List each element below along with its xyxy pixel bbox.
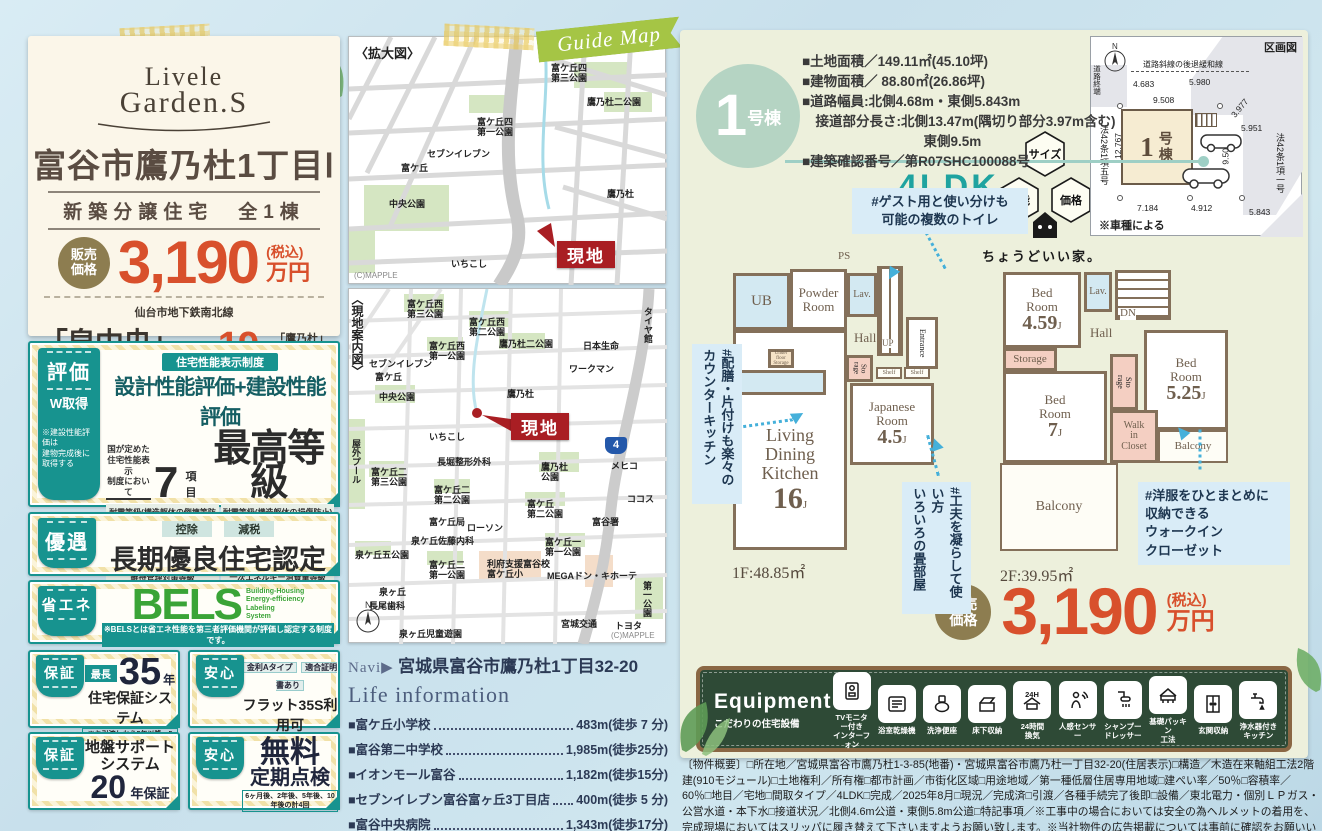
price-tax-note: (税込) <box>1167 589 1215 610</box>
washlet-icon <box>923 685 961 723</box>
site-location-callout: 現地 <box>511 413 569 440</box>
map-label: 富ケ丘四 第一公園 <box>477 117 513 138</box>
list-item: ■イオンモール富谷1,182m(徒歩15分) <box>348 764 668 783</box>
map-label: タイヤ館 <box>643 307 652 343</box>
deduction-badge: 控除 <box>162 521 212 537</box>
map-label: いちこし <box>429 432 465 442</box>
warranty-years: 35 <box>119 656 161 688</box>
ground-years: 20 <box>90 769 126 805</box>
svg-text:価格: 価格 <box>1059 193 1083 207</box>
room-storage: Storage <box>1003 348 1057 371</box>
logo-line2: Garden.S <box>28 86 340 120</box>
map-label: 富谷署 <box>592 517 619 527</box>
map-roads-graphic <box>349 37 667 285</box>
map1-title: 〈拡大図〉 <box>355 43 420 62</box>
inspection-tab-label: 安心 <box>196 745 244 765</box>
balcony-bottom: Balcony <box>1000 463 1118 551</box>
shelf: Shelf <box>876 367 902 379</box>
dimension: 4.683 <box>1133 79 1154 89</box>
foundation-packing-icon <box>1149 676 1187 714</box>
warranty-heading: 住宅保証システム <box>82 688 178 728</box>
flyer-page: Livele Garden.S 富谷市鷹乃杜1丁目Ⅰ 新築分譲住宅 全1棟 販売… <box>0 0 1322 831</box>
shelf: Shelf <box>904 367 930 379</box>
price-label-badge: 販売 価格 <box>58 237 110 289</box>
navi-address: Navi▶ 宮城県富谷市鷹乃杜1丁目32-20 <box>348 652 638 677</box>
poi-name: ■イオンモール富谷 <box>348 764 456 783</box>
motion-sensor-icon <box>1059 681 1097 719</box>
intercom-icon <box>833 672 871 710</box>
equipment-label: 基礎パッキン 工法 <box>1148 717 1187 744</box>
dotted-leader <box>446 753 563 755</box>
map-label: 宮城交通 <box>561 619 597 629</box>
map-label: セブンイレブン <box>369 359 432 369</box>
room-lavatory: Lav. <box>847 273 877 317</box>
price-value: 3,190 <box>1001 582 1156 641</box>
stairs-down-label: DN <box>1120 308 1136 320</box>
energy-tab-label: 省エネ <box>38 594 96 615</box>
warranty-years-unit: 年 <box>163 671 175 688</box>
map-label: 鷹乃杜二公園 <box>499 339 553 349</box>
rail-line-name: 仙台市地下鉄南北線 <box>28 304 340 320</box>
floor1-caption: 1F:48.85㎡ <box>732 559 805 583</box>
leaf-decoration-icon <box>1282 640 1322 696</box>
rating-tab-sublabel: W取得 <box>38 393 100 412</box>
equipment-label: 玄関収納 <box>1194 726 1233 735</box>
map-label: セブンイレブン <box>427 149 490 159</box>
property-subtitle: 新築分譲住宅 全1棟 <box>28 197 340 224</box>
price-tax-note: (税込) <box>266 242 310 262</box>
washi-tape-decoration <box>443 24 534 51</box>
site-location-callout: 現地 <box>557 241 615 268</box>
list-item: ■富谷第二中学校1,985m(徒歩25分) <box>348 739 668 758</box>
map-label: 第一公園 <box>642 581 651 617</box>
room-japanese: Japanese Room 4.5J <box>850 383 934 465</box>
page-title: 富谷市鷹乃杜1丁目Ⅰ <box>28 139 340 187</box>
rating-count-unit: 項目 <box>181 468 200 500</box>
list-item: ■富谷中央病院1,343m(徒歩17分) <box>348 814 668 831</box>
equipment-item: 浄水器付き キッチン <box>1239 681 1278 740</box>
divider <box>44 296 324 298</box>
room-walk-in-closet: Walk in Closet <box>1110 410 1158 463</box>
rating-lead: 国が定めた 住宅性能表示 制度において <box>106 444 151 500</box>
map-label: 鷹乃杜 <box>607 189 634 199</box>
flat35-card: 安心 金利Aタイプ 適合証明書あり フラット35S利用可 ※一連の事務手数料とし… <box>188 650 340 728</box>
equipment-item: 浴室乾燥機 <box>877 685 916 735</box>
map-label: トヨタ <box>615 621 642 631</box>
inspection-card: 安心 無料 定期点検 6ヶ月後、2年後、5年後、10年後の計4回 <box>188 732 340 810</box>
map-label: 長堀整形外科 <box>437 457 491 467</box>
equipment-label: 浄水器付き キッチン <box>1239 722 1278 740</box>
svg-text:N: N <box>365 600 372 610</box>
bels-subtext: Building-Housing Energy-efficiency Label… <box>246 588 304 622</box>
life-information: Life information ■富ケ丘小学校483m(徒歩 7 分) ■富谷… <box>348 682 668 831</box>
dotted-leader <box>459 778 563 780</box>
wic-annotation: #洋服をひとまとめに 収納できる ウォークイン クローゼット <box>1138 482 1290 565</box>
room-bed1: Bed Room 4.59J <box>1003 272 1081 348</box>
room-powder: Powder Room <box>790 269 847 330</box>
ground-heading1: 地盤サポート <box>85 739 175 756</box>
poi-name: ■富ケ丘小学校 <box>348 714 431 733</box>
ground-tab-label: 保証 <box>36 745 84 765</box>
unit-number-badge: 1 号棟 <box>696 64 800 168</box>
room-lavatory: Lav. <box>1084 272 1112 312</box>
map-credit: (C)MAPPLE <box>354 271 398 280</box>
map-label: 富ケ丘西 第二公園 <box>469 317 505 338</box>
equipment-item: シャンプー ドレッサー <box>1103 681 1142 740</box>
map-label: 富ケ丘西 第一公園 <box>429 341 465 362</box>
brand-logo: Livele Garden.S <box>28 62 340 139</box>
map-label: 富ケ丘西 第三公園 <box>407 299 443 320</box>
map-label: ワークマン <box>569 364 614 374</box>
map-label: 利府支援富谷校 富ケ丘小 <box>487 559 550 580</box>
equipment-label: 24時間 換気 <box>1013 722 1052 740</box>
property-overview: 〔物件概要〕□所在地／宮城県富谷市鷹乃杜1-3-85(地番)・宮城県富谷市鷹乃杜… <box>682 758 1320 831</box>
ground-support-card: 保証 地盤サポート システム 20 年保証 <box>28 732 180 810</box>
warranty-tab-label: 保証 <box>36 663 84 683</box>
map-label: 泉ケ丘佐藤内科 <box>411 536 474 546</box>
price-value: 3,190 <box>118 236 258 290</box>
tax-cut-badge: 減税 <box>224 521 274 537</box>
map-label: いちこし <box>451 259 487 269</box>
lot-plan: 区画図 N 道路斜線の後退緩和線 道路終端 法42条1項五号 法42条1項一号 … <box>1090 36 1302 236</box>
free-heading: 無料 <box>242 738 338 768</box>
equipment-item: TVモニター付き インターフォン <box>832 672 871 749</box>
map-label: 泉ヶ丘児童遊園 <box>399 629 462 639</box>
leaf-decoration-icon <box>672 690 732 756</box>
property-header-card: Livele Garden.S 富谷市鷹乃杜1丁目Ⅰ 新築分譲住宅 全1棟 販売… <box>28 36 340 336</box>
setback-note: 道路斜線の後退緩和線 <box>1143 59 1223 70</box>
lot-corner-point <box>1117 103 1123 109</box>
logo-swash-icon <box>94 120 274 134</box>
bath-dryer-icon <box>878 685 916 723</box>
lot-corner-point <box>1217 103 1223 109</box>
equipment-label: 床下収納 <box>968 726 1007 735</box>
equipment-label: 洗浄便座 <box>922 726 961 735</box>
room-storage2: Sto rage <box>1110 354 1138 410</box>
energy-card: 省エネ BELS Building-Housing Energy-efficie… <box>28 580 340 644</box>
shampoo-dresser-icon <box>1104 681 1142 719</box>
dimension: 5.843 <box>1249 207 1270 217</box>
map-label: 泉ヶ丘 <box>379 587 406 597</box>
map-label: 中央公園 <box>389 199 425 209</box>
unit-number: 1 <box>715 93 747 139</box>
map-label: 泉ケ丘五公園 <box>355 550 409 560</box>
map-label: 富ケ丘四 第三公園 <box>551 63 587 84</box>
map-label: 中央公園 <box>379 392 415 402</box>
navi-address-text: 宮城県富谷市鷹乃杜1丁目32-20 <box>398 657 638 676</box>
energy-tab: 省エネ <box>38 586 96 636</box>
map-label: 富ケ丘 <box>375 372 402 382</box>
rating-tab-note: ※建設性能評価は 建物完成後に 取得する <box>38 426 100 472</box>
balcony-right: Balcony <box>1158 430 1228 463</box>
house-number-suffix: 号棟 <box>1154 131 1174 163</box>
map2-title: 〈現地案内図〉 <box>351 293 363 377</box>
navi-label: Navi▶ <box>348 660 394 676</box>
equipment-item: 床下収納 <box>968 685 1007 735</box>
preferential-tab-label: 優遇 <box>38 526 96 555</box>
bels-logo: BELS <box>132 586 241 623</box>
unit-number-suffix: 号棟 <box>747 104 781 129</box>
room-storage: Sto rage <box>846 355 873 382</box>
map-label: 富ケ丘二 第二公園 <box>434 485 470 506</box>
room-entrance: Entrance <box>906 317 938 369</box>
car-icon <box>1199 131 1243 153</box>
map-label: MEGAドン・キホーテ <box>547 571 637 581</box>
price-block: 販売 価格 3,190 (税込) 万円 <box>28 236 340 290</box>
rating-grade: 最高等級 <box>204 432 334 500</box>
dimension: 5.980 <box>1189 77 1210 87</box>
max-badge: 最長 <box>85 665 117 682</box>
map-label: 富ケ丘 <box>401 163 428 173</box>
list-item: ■富ケ丘小学校483m(徒歩 7 分) <box>348 714 668 733</box>
map-label: 鷹乃杜 <box>507 389 534 399</box>
equipment-label: 浴室乾燥機 <box>877 726 916 735</box>
map-label: 鷹乃杜二公園 <box>587 97 641 107</box>
law-label-right: 法42条1項一号 <box>1275 133 1284 193</box>
kitchen-counter <box>738 370 826 395</box>
dimension: 5.951 <box>1241 123 1262 133</box>
rating-count: 7 <box>154 465 178 500</box>
price-unit: 万円 <box>1167 610 1215 634</box>
system-pill: 住宅性能表示制度 <box>162 353 278 371</box>
dimension: 9.508 <box>1153 95 1174 105</box>
house-number: 1 <box>1140 132 1154 163</box>
rating-tab-label: 評価 <box>38 356 100 385</box>
map-label: 鷹乃杜 公園 <box>541 462 568 483</box>
stairs-up-label: UP <box>882 339 894 348</box>
setback-line <box>1131 71 1249 72</box>
ground-tab: 保証 <box>36 737 84 779</box>
rate-type-badge: 金利Aタイプ <box>243 662 297 673</box>
map-label: 富ケ丘一 第一公園 <box>545 537 581 558</box>
map-label: 富ケ丘二 第一公園 <box>429 560 465 581</box>
equipment-item: 人感センサー <box>1058 681 1097 740</box>
dotted-leader <box>434 728 574 730</box>
tatami-annotation: #工夫を凝らして使い方 いろいろの畳部屋 <box>902 482 971 614</box>
location-map: 〈現地案内図〉 富ケ丘西 第三公園 富ケ丘西 第二公園 鷹乃杜二公園 富ケ丘西 … <box>348 288 666 643</box>
dotted-leader <box>553 803 573 805</box>
kitchen-annotation: #配膳・片付けも楽々の カウンターキッチン <box>692 344 742 504</box>
equipment-label: シャンプー ドレッサー <box>1103 722 1142 740</box>
dotted-leader <box>434 828 563 830</box>
map-label: 屋外プール <box>351 439 360 484</box>
preferential-card: 優遇 控除 減税 長期優良住宅認定物件 ※一部の建物は対象外の場合があります。 <box>28 512 340 576</box>
ground-years-unit: 年保証 <box>131 786 170 801</box>
flat35-heading: フラット35S利用可 <box>242 695 338 735</box>
room-bed2: Bed Room 7J <box>1003 371 1107 463</box>
poi-distance: 1,343m(徒歩17分) <box>566 814 668 831</box>
rating-card: 評価 W取得 ※建設性能評価は 建物完成後に 取得する 住宅性能表示制度 設計性… <box>28 341 340 507</box>
svg-text:N: N <box>1112 42 1118 51</box>
water-purifier-icon <box>1239 681 1277 719</box>
equipment-item: 基礎パッキン 工法 <box>1148 676 1187 744</box>
map-label: メヒコ <box>611 461 638 471</box>
flat35-tab-label: 安心 <box>196 663 244 683</box>
equipment-item: 24H 24時間 換気 <box>1013 681 1052 740</box>
flat35-tab: 安心 <box>196 655 244 697</box>
entrance-storage-icon <box>1194 685 1232 723</box>
inspection-heading: 定期点検 <box>242 768 338 788</box>
map-label: ローソン <box>467 523 503 533</box>
inspection-tab: 安心 <box>196 737 244 779</box>
poi-distance: 483m(徒歩 7 分) <box>576 714 668 733</box>
floor-storage-icon <box>968 685 1006 723</box>
porch-steps <box>1195 113 1217 127</box>
map-label: 富ケ丘局 <box>429 517 465 527</box>
room-label-hall: Hall <box>854 331 876 345</box>
ventilation-24h-icon: 24H <box>1013 681 1051 719</box>
poi-name: ■富谷中央病院 <box>348 814 431 831</box>
unit-specs: ■土地面積／149.11㎡(45.10坪) ■建物面積／ 88.80㎡(26.8… <box>802 52 1116 172</box>
lot-plan-title: 区画図 <box>1264 39 1297 55</box>
car-type-note: ※車種による <box>1099 217 1165 233</box>
car-icon <box>1181 165 1231 189</box>
equipment-item: 洗浄便座 <box>922 685 961 735</box>
map-label: 富ケ丘 第二公園 <box>527 499 563 520</box>
poi-name: ■セブンイレブン富谷富ヶ丘3丁目店 <box>348 789 550 808</box>
dimension: 7.184 <box>1137 203 1158 213</box>
map-label: 富ケ丘二 第三公園 <box>371 467 407 488</box>
list-item: ■セブンイレブン富谷富ヶ丘3丁目店400m(徒歩 5 分) <box>348 789 668 808</box>
rating-heading: 設計性能評価+建設性能評価 <box>106 371 334 431</box>
equipment-label: TVモニター付き インターフォン <box>832 713 871 749</box>
energy-note: ※BELSとは省エネ性能を第三者評価機関が評価し認定する制度です。 <box>102 623 334 647</box>
rating-tab: 評価 W取得 ※建設性能評価は 建物完成後に 取得する <box>38 348 100 500</box>
dimension: 4.912 <box>1191 203 1212 213</box>
map-label: ココス <box>627 494 654 504</box>
route-4-shield: 4 <box>605 437 627 454</box>
unit-detail-panel: 1 号棟 ■土地面積／149.11㎡(45.10坪) ■建物面積／ 88.80㎡… <box>680 30 1308 758</box>
life-info-title: Life information <box>348 682 668 708</box>
divider <box>48 191 320 193</box>
equipment-item: 玄関収納 <box>1194 685 1233 735</box>
map-label: 日本生命 <box>583 341 619 351</box>
poi-distance: 1,182m(徒歩15分) <box>566 764 668 783</box>
equipment-label: 人感センサー <box>1058 722 1097 740</box>
toilet-annotation: #ゲスト用と使い分けも 可能の複数のトイレ <box>852 188 1028 234</box>
warranty-tab: 保証 <box>36 655 84 697</box>
under-floor-storage: Under floor Storage <box>768 349 794 368</box>
room-label-ps: PS <box>838 251 850 263</box>
lot-corner-point <box>1117 195 1123 201</box>
guide-map-enlarged: 〈拡大図〉 富ケ丘四 第三公園 鷹乃杜二公園 富ケ丘四 第一公園 セブンイレブン… <box>348 36 666 284</box>
preferential-tab: 優遇 <box>38 518 96 568</box>
poi-distance: 400m(徒歩 5 分) <box>576 789 668 808</box>
lot-corner-point <box>1187 195 1193 201</box>
compass-icon: N <box>355 599 383 635</box>
warranty35-card: 保証 最長 35 年 住宅保証システム ※お引渡しから5年以降、5年ごとに 有償… <box>28 650 180 728</box>
inspection-note: 6ヶ月後、2年後、5年後、10年後の計4回 <box>242 790 338 812</box>
price-unit: 万円 <box>266 262 310 284</box>
lot-corner-point <box>1239 195 1245 201</box>
annotation-connector <box>1199 430 1202 470</box>
equipment-bar: Equipment こだわりの住宅設備 TVモニター付き インターフォン 浴室乾… <box>696 666 1292 752</box>
brand-tagline: ちょうどいい家。 <box>982 246 1102 265</box>
map-credit: (C)MAPPLE <box>611 631 655 640</box>
poi-name: ■富谷第二中学校 <box>348 739 443 758</box>
room-bath: UB <box>733 273 790 330</box>
room-label-hall: Hall <box>1090 326 1112 340</box>
poi-distance: 1,985m(徒歩25分) <box>566 739 668 758</box>
